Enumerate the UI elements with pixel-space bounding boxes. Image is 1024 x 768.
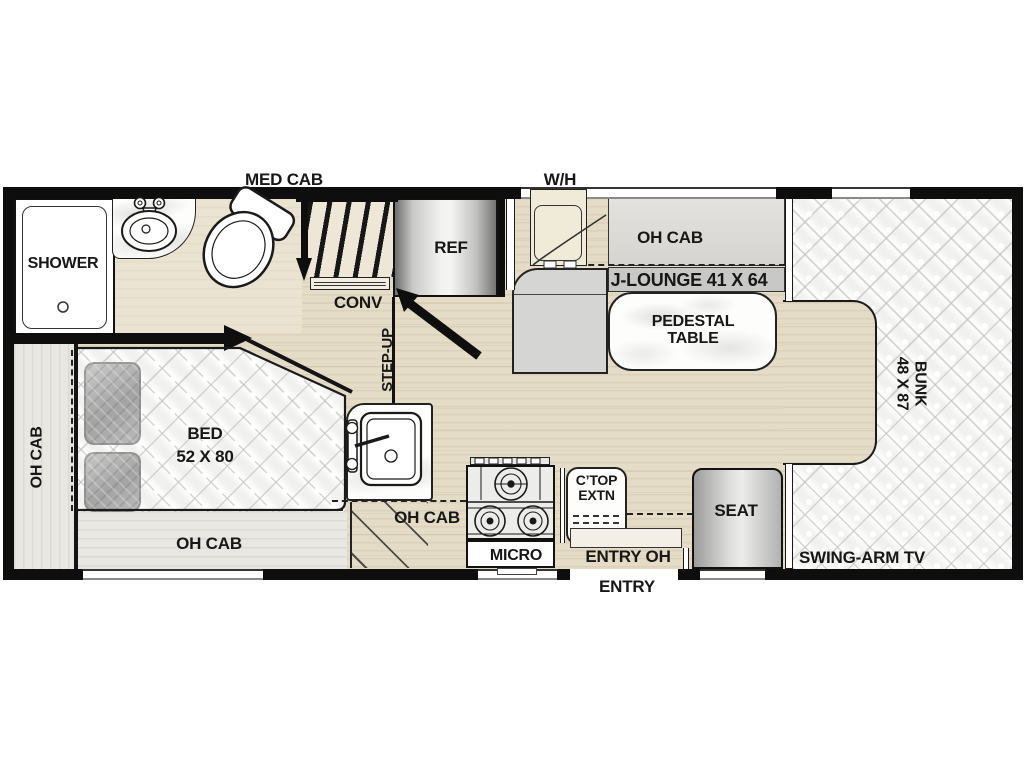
label-ctop-extn: C’TOP EXTN (566, 473, 627, 504)
label-wh: W/H (530, 171, 590, 189)
label-pedestal-line2: TABLE (667, 330, 718, 347)
label-micro: MICRO (475, 548, 557, 565)
label-seat: SEAT (696, 502, 776, 520)
label-ctop-line1: C’TOP (576, 472, 618, 488)
label-dinette-oh-cab: OH CAB (620, 229, 720, 247)
bath-door-arrow-2 (296, 258, 312, 281)
label-bed-oh-cab: OH CAB (159, 535, 259, 553)
label-j-lounge: J-LOUNGE 41 X 64 (599, 271, 779, 290)
label-entry: ENTRY (587, 578, 667, 596)
label-bed: BED 52 X 80 (150, 423, 260, 469)
label-step-up: STEP-UP (380, 320, 396, 400)
ohcab-clip-1 (544, 261, 556, 268)
rv-floorplan: MED CAB W/H ENTRY SHOWER CONV REF STEP-U… (0, 0, 1024, 768)
ohcab-clip-2 (564, 261, 576, 268)
label-kitchen-oh-cab: OH CAB (377, 509, 477, 527)
label-shower: SHOWER (18, 256, 108, 273)
label-pedestal-table: PEDESTAL TABLE (633, 314, 753, 348)
label-entry-oh: ENTRY OH (568, 548, 688, 566)
label-bed-line1: BED (187, 424, 222, 443)
bath-sink-icon (122, 198, 176, 252)
label-ref: REF (411, 239, 491, 257)
step-divider (396, 288, 479, 356)
label-bunk-line1: BUNK (912, 361, 929, 406)
kitchen-sink-icon (347, 413, 422, 485)
label-med-cab: MED CAB (234, 171, 334, 189)
label-ctop-line2: EXTN (578, 487, 615, 503)
wh-door-swing (533, 215, 606, 265)
linework-overlay (0, 0, 1024, 768)
label-bunk: BUNK 48 X 87 (893, 339, 928, 429)
cooktop-burners-icon (467, 458, 554, 536)
label-rear-oh-cab: OH CAB (30, 422, 47, 492)
toilet-icon (190, 183, 297, 300)
angled-wall (246, 339, 352, 392)
label-pedestal-line1: PEDESTAL (652, 313, 735, 330)
label-bunk-line2: 48 X 87 (894, 357, 911, 411)
label-conv: CONV (318, 294, 398, 312)
label-swing-arm-tv: SWING-ARM TV (792, 549, 932, 567)
label-bed-line2: 52 X 80 (176, 447, 233, 466)
shower-drain-icon (58, 302, 68, 312)
